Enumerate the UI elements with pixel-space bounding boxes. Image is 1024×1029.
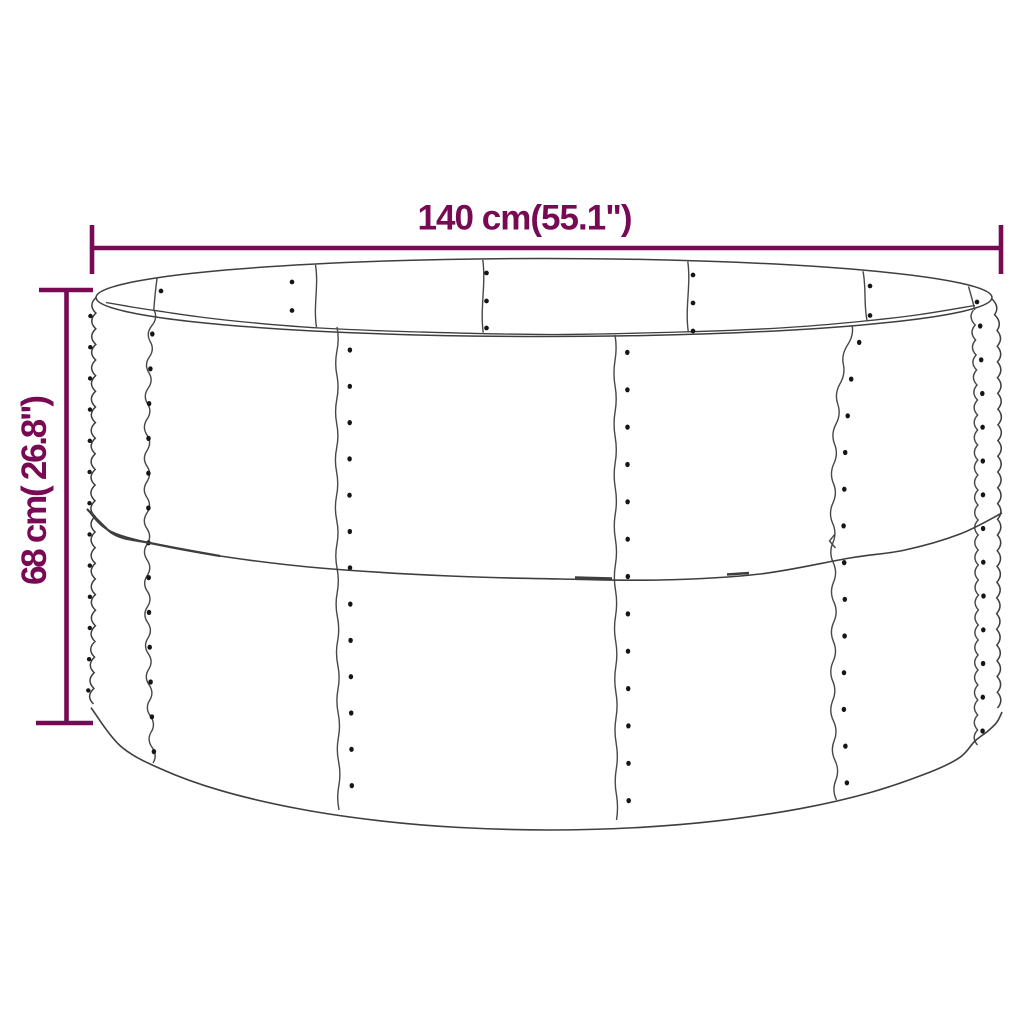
svg-text:140 cm(55.1"): 140 cm(55.1")	[418, 199, 633, 238]
svg-text:68 cm( 26.8"): 68 cm( 26.8")	[15, 395, 54, 585]
